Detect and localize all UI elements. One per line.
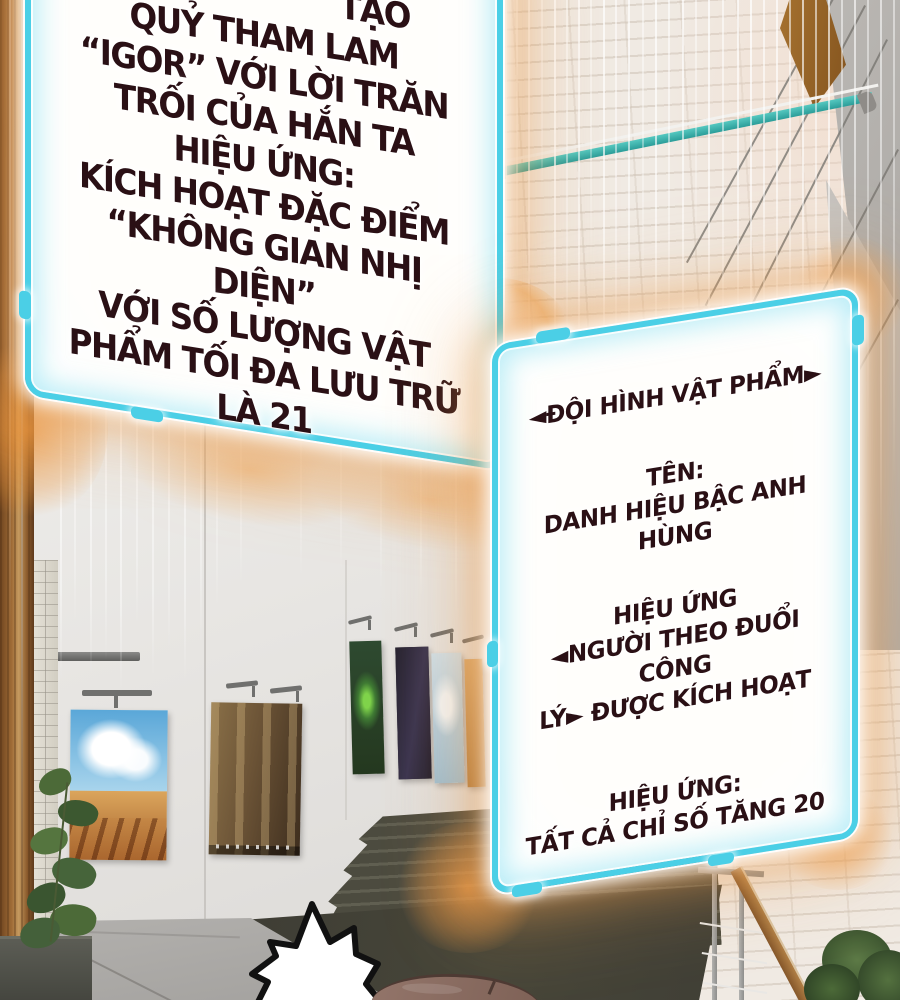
light-streak [152, 398, 154, 678]
light-streak [105, 390, 107, 660]
light-streak [90, 386, 92, 676]
speech-burst [246, 894, 388, 1000]
light-streak [216, 408, 218, 608]
light-streak [240, 415, 242, 585]
light-streak [340, 434, 342, 574]
hair-part-line [488, 981, 496, 995]
system-text: TẠO QUỶ THAM LAM “IGOR” VỚI LỜI TRĂN TRỐ… [47, 0, 480, 461]
light-streak [60, 382, 62, 682]
light-streak [880, 0, 882, 560]
light-streak [893, 0, 895, 480]
light-streak [74, 384, 76, 624]
window-border-tab [852, 314, 864, 346]
system-text: ◄ĐỘI HÌNH VẬT PHẨM► TÊN: DANH HIỆU BẬC A… [505, 295, 845, 887]
light-streak [168, 400, 170, 650]
light-streak [695, 0, 697, 250]
hair-highlight [402, 982, 462, 995]
comic-page: TẠO QUỶ THAM LAM “IGOR” VỚI LỜI TRĂN TRỐ… [0, 0, 900, 1000]
window-border-tab [19, 290, 31, 320]
light-streak [120, 392, 122, 692]
light-streak [21, 0, 23, 900]
system-window-inventory: TẠO QUỶ THAM LAM “IGOR” VỚI LỜI TRĂN TRỐ… [25, 0, 503, 471]
light-streak [420, 448, 422, 598]
window-border-tab [487, 640, 498, 668]
light-streak [541, 0, 543, 200]
light-streak [136, 395, 138, 625]
light-streak [200, 405, 202, 645]
light-streak [642, 0, 644, 300]
system-window-item-set: ◄ĐỘI HÌNH VẬT PHẨM► TÊN: DANH HIỆU BẬC A… [492, 287, 858, 895]
light-streak [380, 441, 382, 591]
light-streak [590, 0, 592, 260]
light-streak [300, 428, 302, 578]
light-streak [9, 0, 11, 640]
light-streak [867, 0, 869, 440]
light-streak [184, 402, 186, 682]
light-streak [455, 455, 457, 625]
system-window-title: ◄ĐỘI HÌNH VẬT PHẨM► [515, 355, 836, 437]
light-streak [516, 0, 518, 300]
